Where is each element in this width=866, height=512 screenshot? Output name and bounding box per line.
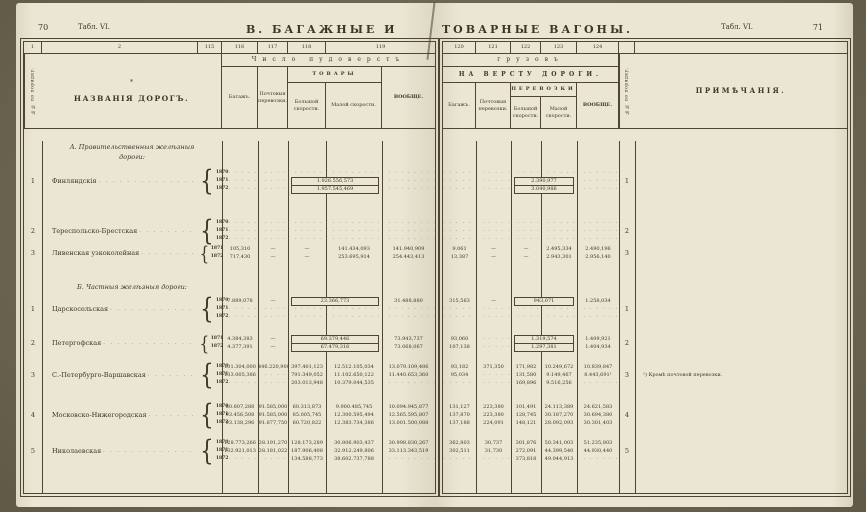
col-number: 121 bbox=[476, 42, 511, 54]
road-row-right: . . . . . . . . . . . . . . . . . . . . … bbox=[443, 169, 847, 193]
dot-leader: . . . . . . . . . . . . . . . . . . . . … bbox=[139, 228, 196, 234]
empty-dotted-cell: . . . . . . . . . . . . . . bbox=[288, 219, 326, 227]
data-cell: 302,511 bbox=[443, 447, 476, 455]
empty-dotted-cell: . . . . . . . . . . . . . . bbox=[222, 177, 258, 185]
road-number: 5 bbox=[24, 439, 42, 463]
empty-dotted-cell: . . . . . . . . . . . . . . bbox=[577, 185, 619, 193]
data-cell: — bbox=[258, 297, 288, 305]
empty-dotted-cell: . . . . . . . . . . . . . . bbox=[382, 313, 435, 321]
empty-dotted-cell: . . . . . . . . . . . . . . bbox=[222, 305, 258, 313]
empty-dotted-cell: . . . . . . . . . . . . . . bbox=[577, 169, 619, 177]
data-cell: 717,430 bbox=[222, 253, 258, 261]
merged-value-box: 67.479,316 bbox=[291, 343, 379, 352]
data-cell: 80.807,288 bbox=[222, 403, 258, 411]
empty-dotted-cell: . . . . . . . . . . . . . . bbox=[326, 305, 382, 313]
empty-dotted-cell: . . . . . . . . . . . . . . bbox=[258, 227, 288, 235]
data-cell: 93.456,508 bbox=[222, 411, 258, 419]
data-cell: 141.940,909 bbox=[382, 245, 435, 253]
empty-dotted-cell: . . . . . . . . . . . . . . bbox=[541, 219, 577, 227]
col-number: 118 bbox=[288, 42, 326, 54]
year-brace-cell: {187018711872 bbox=[198, 219, 222, 243]
empty-dotted-cell: . . . . . . . . . . . . . . bbox=[326, 227, 382, 235]
data-cell: 362,803 bbox=[443, 439, 476, 447]
data-cell: 254.443,413 bbox=[382, 253, 435, 261]
data-cell: 93,182 bbox=[443, 363, 476, 371]
road-number: 3 bbox=[24, 363, 42, 387]
road-note: ¹) Кромѣ почтовой перевозки. bbox=[635, 363, 847, 387]
col-number: 2 bbox=[42, 42, 198, 54]
data-cell: 128,745 bbox=[511, 411, 541, 419]
data-cell: 33.113.343,519 bbox=[382, 447, 435, 455]
road-row-right: 93,182371,350171,98210.249,67210.839,847… bbox=[443, 363, 847, 387]
baggage-header: Багажъ. bbox=[443, 83, 476, 128]
year-brace: { bbox=[200, 439, 213, 463]
empty-dotted-cell: . . . . . . . . . . . . . . bbox=[382, 379, 435, 387]
running-head-right: ТОВАРНЫЕ ВАГОНЫ. Табл. VI. 71 bbox=[434, 23, 853, 37]
section-heading-spacer bbox=[443, 141, 847, 163]
col-number: 117 bbox=[258, 42, 288, 54]
data-cell: — bbox=[511, 253, 541, 261]
empty-dotted-cell: . . . . . . . . . . . . . . bbox=[476, 343, 511, 351]
data-cell: 95,034 bbox=[443, 371, 476, 379]
empty-dotted-cell: . . . . . . . . . . . . . . bbox=[443, 219, 476, 227]
empty-dotted-cell: . . . . . . . . . . . . . . bbox=[222, 455, 258, 463]
merged-value-box: 1.957.545,469 bbox=[291, 185, 379, 194]
empty-dotted-cell: . . . . . . . . . . . . . . bbox=[258, 305, 288, 313]
data-cell: 2.943,301 bbox=[541, 253, 577, 261]
col-number: 119 bbox=[326, 42, 435, 54]
empty-dotted-cell: . . . . . . . . . . . . . . bbox=[326, 313, 382, 321]
year-brace: { bbox=[200, 219, 213, 243]
data-cell: 2.490,196 bbox=[577, 245, 619, 253]
empty-dotted-cell: . . . . . . . . . . . . . . bbox=[476, 169, 511, 177]
col-number: 115 bbox=[198, 42, 222, 54]
total-header: ВООБЩЕ. bbox=[577, 83, 619, 128]
empty-dotted-cell: . . . . . . . . . . . . . . bbox=[476, 335, 511, 343]
road-number-right: 1 bbox=[619, 169, 635, 193]
data-cell: 30.998.830,267 bbox=[382, 439, 435, 447]
empty-dotted-cell: . . . . . . . . . . . . . . bbox=[288, 305, 326, 313]
data-cell: — bbox=[511, 245, 541, 253]
data-cell: 10.839,847 bbox=[577, 363, 619, 371]
section-heading-spacer bbox=[443, 281, 847, 293]
road-name: Николаевская bbox=[52, 447, 101, 455]
data-cell: — bbox=[258, 253, 288, 261]
data-cell: 13,387 bbox=[443, 253, 476, 261]
empty-dotted-cell: . . . . . . . . . . . . . . bbox=[577, 227, 619, 235]
road-name-cell: Финляндскія. . . . . . . . . . . . . . .… bbox=[42, 169, 198, 193]
data-cell: — bbox=[476, 253, 511, 261]
order-column-header: №№ по порядку. bbox=[619, 54, 635, 128]
data-cell: 137,188 bbox=[443, 419, 476, 427]
empty-dotted-cell: . . . . . . . . . . . . . . bbox=[258, 313, 288, 321]
empty-dotted-cell: . . . . . . . . . . . . . . bbox=[382, 305, 435, 313]
road-number-right: 4 bbox=[619, 403, 635, 427]
data-cell: 13.079.109,486 bbox=[382, 363, 435, 371]
table-right-header: 120 121 122 123 124 грузовъ НА ВЕРСТУ ДО… bbox=[443, 42, 847, 129]
slow-speed-header: Малой скорости. bbox=[326, 83, 382, 128]
data-cell: — bbox=[288, 253, 326, 261]
empty-dotted-cell: . . . . . . . . . . . . . . bbox=[511, 313, 541, 321]
empty-dotted-cell: . . . . . . . . . . . . . . bbox=[476, 313, 511, 321]
empty-dotted-cell: . . . . . . . . . . . . . . bbox=[326, 235, 382, 243]
road-number: 1 bbox=[24, 169, 42, 193]
data-cell: 11.102.650,122 bbox=[326, 371, 382, 379]
empty-dotted-cell: . . . . . . . . . . . . . . bbox=[476, 455, 511, 463]
data-cell: — bbox=[258, 335, 288, 343]
road-row-right: 315,563—943,0711.258,034. . . . . . . . … bbox=[443, 297, 847, 321]
dot-leader: . . . . . . . . . . . . . . . . . . . . … bbox=[141, 250, 196, 256]
data-cell: 137,870 bbox=[443, 411, 476, 419]
year-brace: { bbox=[200, 297, 213, 321]
data-cell: 223,380 bbox=[476, 411, 511, 419]
road-number-right: 5 bbox=[619, 439, 635, 463]
data-cell: 12.383.734,386 bbox=[326, 419, 382, 427]
data-cell: 91.585,000 bbox=[258, 411, 288, 419]
data-cell: 73.068,067 bbox=[382, 343, 435, 351]
data-cell: 397.401,123 bbox=[288, 363, 326, 371]
data-cell: — bbox=[476, 245, 511, 253]
empty-dotted-cell: . . . . . . . . . . . . . . bbox=[222, 313, 258, 321]
data-cell: 9.149,467 bbox=[541, 371, 577, 379]
data-cell: 31.488,880 bbox=[382, 297, 435, 305]
data-cell: 253.695,914 bbox=[326, 253, 382, 261]
table-right-body: . . . . . . . . . . . . . . . . . . . . … bbox=[443, 141, 847, 493]
empty-dotted-cell: . . . . . . . . . . . . . . bbox=[511, 305, 541, 313]
section-heading: Б. Частныя желѣзныя дороги: bbox=[42, 281, 222, 293]
table-ref-left: Табл. VI. bbox=[78, 23, 110, 31]
data-cell: 272,091 bbox=[511, 447, 541, 455]
data-cell: 10.249,672 bbox=[541, 363, 577, 371]
road-row: 1Финляндскія. . . . . . . . . . . . . . … bbox=[24, 169, 435, 193]
data-cell: 7.889,078 bbox=[222, 297, 258, 305]
data-cell: 85.005,745 bbox=[288, 411, 326, 419]
road-row: 3Ливенская узкоколейная. . . . . . . . .… bbox=[24, 245, 435, 261]
merged-value-box: 23.366,773 bbox=[291, 297, 379, 306]
table-left-frame: 1 2 115 116 117 118 119 №№ по порядку. *… bbox=[20, 38, 439, 497]
empty-dotted-cell: . . . . . . . . . . . . . . bbox=[443, 227, 476, 235]
data-cell: 60.313,873 bbox=[288, 403, 326, 411]
col-number: 116 bbox=[222, 42, 258, 54]
year-brace-cell: {187018711872 bbox=[198, 439, 222, 463]
data-cell: 371,350 bbox=[476, 363, 511, 371]
slow-speed-header: Малой скорости. bbox=[541, 97, 577, 128]
empty-dotted-cell: . . . . . . . . . . . . . . bbox=[476, 371, 511, 379]
col-number: 1 bbox=[24, 42, 42, 54]
data-cell: 13.001.500,088 bbox=[382, 419, 435, 427]
dot-leader: . . . . . . . . . . . . . . . . . . . . … bbox=[110, 306, 196, 312]
empty-dotted-cell: . . . . . . . . . . . . . . bbox=[222, 185, 258, 193]
data-cell: 105,310 bbox=[222, 245, 258, 253]
section-heading-row: А. Правительственныя желѣзныя дороги: bbox=[24, 141, 435, 163]
road-name-cell: С.-Петербурго-Варшавская. . . . . . . . … bbox=[42, 363, 198, 387]
data-cell: 44.399,540 bbox=[541, 447, 577, 455]
data-cell: 9.900.485,745 bbox=[326, 403, 382, 411]
page-number-right: 71 bbox=[813, 23, 823, 32]
data-cell: 60.720,822 bbox=[288, 419, 326, 427]
data-cell: 1.258,034 bbox=[577, 297, 619, 305]
empty-dotted-cell: . . . . . . . . . . . . . . bbox=[476, 185, 511, 193]
fast-speed-header: Большой скорости. bbox=[288, 83, 326, 128]
empty-dotted-cell: . . . . . . . . . . . . . . bbox=[258, 235, 288, 243]
data-cell: — bbox=[288, 245, 326, 253]
empty-dotted-cell: . . . . . . . . . . . . . . bbox=[443, 313, 476, 321]
data-cell: 791.349,052 bbox=[288, 371, 326, 379]
data-cell: 133.005,386 bbox=[222, 371, 258, 379]
data-cell: 2.495,334 bbox=[541, 245, 577, 253]
fast-speed-header: Большой скорости. bbox=[511, 97, 541, 128]
empty-dotted-cell: . . . . . . . . . . . . . . bbox=[258, 379, 288, 387]
post-header: Почтовыя перевозки. bbox=[476, 83, 511, 128]
empty-dotted-cell: . . . . . . . . . . . . . . bbox=[577, 219, 619, 227]
data-cell: 44.930,440 bbox=[577, 447, 619, 455]
road-row: 1Царскосельская. . . . . . . . . . . . .… bbox=[24, 297, 435, 321]
year-brace-cell: {187018711872 bbox=[198, 169, 222, 193]
year-brace-cell: {18711872 bbox=[198, 335, 222, 351]
col-number: 122 bbox=[511, 42, 541, 54]
year-brace-cell: {187018711872 bbox=[198, 297, 222, 321]
table-left-body: А. Правительственныя желѣзныя дороги:1Фи… bbox=[24, 141, 435, 493]
empty-dotted-cell: . . . . . . . . . . . . . . bbox=[476, 379, 511, 387]
road-name: С.-Петербурго-Варшавская bbox=[52, 371, 146, 379]
road-name-cell: Петергофская. . . . . . . . . . . . . . … bbox=[42, 335, 198, 351]
data-cell: 131,580 bbox=[511, 371, 541, 379]
empty-dotted-cell: . . . . . . . . . . . . . . bbox=[511, 227, 541, 235]
data-cell: 24.621,583 bbox=[577, 403, 619, 411]
empty-dotted-cell: . . . . . . . . . . . . . . bbox=[382, 227, 435, 235]
road-name-cell: Московско-Нижегородская. . . . . . . . .… bbox=[42, 403, 198, 427]
data-cell: 10.379.044,535 bbox=[326, 379, 382, 387]
road-number: 2 bbox=[24, 219, 42, 243]
data-cell: 301,876 bbox=[511, 439, 541, 447]
empty-dotted-cell: . . . . . . . . . . . . . . bbox=[541, 305, 577, 313]
section-heading: А. Правительственныя желѣзныя дороги: bbox=[42, 141, 222, 163]
empty-dotted-cell: . . . . . . . . . . . . . . bbox=[222, 235, 258, 243]
data-cell: 49.044,913 bbox=[541, 455, 577, 463]
data-cell: 28.181,022 bbox=[258, 447, 288, 455]
col-number: 123 bbox=[541, 42, 577, 54]
road-number-right: 3 bbox=[619, 363, 635, 387]
notes-header: ПРИМѢЧАНІЯ. bbox=[635, 54, 847, 128]
data-cell: 8.443,691¹ bbox=[577, 371, 619, 379]
data-cell: 91.585,000 bbox=[258, 403, 288, 411]
empty-dotted-cell: . . . . . . . . . . . . . . bbox=[258, 455, 288, 463]
empty-dotted-cell: . . . . . . . . . . . . . . bbox=[511, 219, 541, 227]
empty-dotted-cell: . . . . . . . . . . . . . . bbox=[443, 177, 476, 185]
empty-dotted-cell: . . . . . . . . . . . . . . bbox=[511, 235, 541, 243]
data-cell: 30.187,270 bbox=[541, 411, 577, 419]
empty-dotted-cell: . . . . . . . . . . . . . . bbox=[222, 227, 258, 235]
empty-dotted-cell: . . . . . . . . . . . . . . bbox=[577, 235, 619, 243]
span-header-poods: Число пудоверстъ bbox=[222, 54, 435, 67]
data-cell: 30.301,403 bbox=[577, 419, 619, 427]
data-cell: 28.191,270 bbox=[258, 439, 288, 447]
empty-dotted-cell: . . . . . . . . . . . . . . bbox=[258, 177, 288, 185]
road-row: 3С.-Петербурго-Варшавская. . . . . . . .… bbox=[24, 363, 435, 387]
col-number: 120 bbox=[443, 42, 476, 54]
empty-dotted-cell: . . . . . . . . . . . . . . bbox=[541, 235, 577, 243]
year-brace-cell: {187018711872 bbox=[198, 403, 222, 427]
road-name-cell: Царскосельская. . . . . . . . . . . . . … bbox=[42, 297, 198, 321]
baggage-header: Багажъ. bbox=[222, 67, 258, 128]
blank-header-cell bbox=[619, 42, 635, 54]
empty-dotted-cell: . . . . . . . . . . . . . . bbox=[577, 379, 619, 387]
data-cell: 1.409,921 bbox=[577, 335, 619, 343]
empty-dotted-cell: . . . . . . . . . . . . . . bbox=[443, 169, 476, 177]
data-cell: 132.921,013 bbox=[222, 447, 258, 455]
data-cell: 315,563 bbox=[443, 297, 476, 305]
merged-value-box: 3.040,986 bbox=[514, 185, 574, 194]
data-cell: 187.906,408 bbox=[288, 447, 326, 455]
names-header: НАЗВАНІЯ ДОРОГЪ. bbox=[74, 94, 189, 103]
empty-dotted-cell: . . . . . . . . . . . . . . bbox=[577, 305, 619, 313]
data-cell: 9.516,256 bbox=[541, 379, 577, 387]
data-cell: 101,491 bbox=[511, 403, 541, 411]
names-asterisk: * bbox=[130, 79, 133, 87]
road-row-right: 131,127223,380101,49124.113,38924.621,58… bbox=[443, 403, 847, 427]
road-number: 3 bbox=[24, 245, 42, 261]
data-cell: 141.434,093 bbox=[326, 245, 382, 253]
empty-dotted-cell: . . . . . . . . . . . . . . bbox=[382, 455, 435, 463]
merged-value-box: 943,071 bbox=[514, 297, 574, 306]
col-number: 124 bbox=[577, 42, 619, 54]
road-name: Финляндскія bbox=[52, 177, 97, 185]
road-row: 4Московско-Нижегородская. . . . . . . . … bbox=[24, 403, 435, 427]
data-cell: 9,061 bbox=[443, 245, 476, 253]
merged-value-box: 1.297,381 bbox=[514, 343, 574, 352]
blank-header-cell bbox=[635, 42, 847, 54]
transport-group-header: ПЕРЕВОЗКИ bbox=[511, 83, 577, 97]
empty-dotted-cell: . . . . . . . . . . . . . . bbox=[288, 313, 326, 321]
road-number: 2 bbox=[24, 335, 42, 351]
data-cell: 4.377,391 bbox=[222, 343, 258, 351]
empty-dotted-cell: . . . . . . . . . . . . . . bbox=[443, 235, 476, 243]
data-cell: 12.565.595,807 bbox=[382, 411, 435, 419]
dot-leader: . . . . . . . . . . . . . . . . . . . . … bbox=[148, 372, 196, 378]
road-row-right: . . . . . . . . . . . . . . . . . . . . … bbox=[443, 219, 847, 243]
data-cell: 91.877,750 bbox=[258, 419, 288, 427]
empty-dotted-cell: . . . . . . . . . . . . . . bbox=[476, 235, 511, 243]
empty-dotted-cell: . . . . . . . . . . . . . . bbox=[382, 219, 435, 227]
order-column-header: №№ по порядку. bbox=[24, 54, 42, 128]
empty-dotted-cell: . . . . . . . . . . . . . . bbox=[382, 185, 435, 193]
road-row: 2Петергофская. . . . . . . . . . . . . .… bbox=[24, 335, 435, 351]
empty-dotted-cell: . . . . . . . . . . . . . . bbox=[222, 379, 258, 387]
section-heading-row: Б. Частныя желѣзныя дороги: bbox=[24, 281, 435, 293]
data-cell: 1.404,934 bbox=[577, 343, 619, 351]
empty-dotted-cell: . . . . . . . . . . . . . . bbox=[476, 177, 511, 185]
road-name: Тереспольско-Брестская bbox=[52, 227, 137, 235]
empty-dotted-cell: . . . . . . . . . . . . . . bbox=[476, 305, 511, 313]
road-row: 5Николаевская. . . . . . . . . . . . . .… bbox=[24, 439, 435, 463]
road-row-right: 9,061——2.495,3342.490,19613,387——2.943,3… bbox=[443, 245, 847, 261]
year-brace: { bbox=[200, 169, 213, 193]
road-name-cell: Николаевская. . . . . . . . . . . . . . … bbox=[42, 439, 198, 463]
data-cell: 30.806.903,437 bbox=[326, 439, 382, 447]
road-name: Царскосельская bbox=[52, 305, 108, 313]
data-cell: 171,982 bbox=[511, 363, 541, 371]
dot-leader: . . . . . . . . . . . . . . . . . . . . … bbox=[149, 412, 196, 418]
empty-dotted-cell: . . . . . . . . . . . . . . bbox=[577, 455, 619, 463]
data-cell: 223,380 bbox=[476, 403, 511, 411]
empty-dotted-cell: . . . . . . . . . . . . . . bbox=[443, 455, 476, 463]
data-cell: 11.440.653,360 bbox=[382, 371, 435, 379]
year-brace: { bbox=[200, 245, 210, 261]
data-cell: 10.094.945,877 bbox=[382, 403, 435, 411]
data-cell: 31,730 bbox=[476, 447, 511, 455]
road-number-right: 1 bbox=[619, 297, 635, 321]
table-ref-right: Табл. VI. bbox=[721, 23, 753, 31]
empty-dotted-cell: . . . . . . . . . . . . . . bbox=[382, 177, 435, 185]
empty-dotted-cell: . . . . . . . . . . . . . . bbox=[476, 227, 511, 235]
span-header-cargo: грузовъ bbox=[443, 54, 619, 67]
data-cell: 128.173,289 bbox=[288, 439, 326, 447]
road-name-cell: Ливенская узкоколейная. . . . . . . . . … bbox=[42, 245, 198, 261]
data-cell: — bbox=[258, 343, 288, 351]
table-right-frame: 120 121 122 123 124 грузовъ НА ВЕРСТУ ДО… bbox=[439, 38, 851, 497]
post-header: Почтовыя перевозки. bbox=[258, 67, 288, 128]
year-brace: { bbox=[200, 363, 213, 387]
table-left-header: 1 2 115 116 117 118 119 №№ по порядку. *… bbox=[24, 42, 435, 129]
data-cell: 12.512.105,034 bbox=[326, 363, 382, 371]
road-number-right: 2 bbox=[619, 335, 635, 351]
data-cell: 224,091 bbox=[476, 419, 511, 427]
road-name: Петергофская bbox=[52, 339, 101, 347]
empty-dotted-cell: . . . . . . . . . . . . . . bbox=[577, 313, 619, 321]
data-cell: 38.602.737,788 bbox=[326, 455, 382, 463]
empty-dotted-cell: . . . . . . . . . . . . . . bbox=[382, 169, 435, 177]
data-cell: 131,127 bbox=[443, 403, 476, 411]
year-brace-cell: {18711872 bbox=[198, 245, 222, 261]
data-cell: 169,896 bbox=[511, 379, 541, 387]
data-cell: 50.341,003 bbox=[541, 439, 577, 447]
goods-group-header: ТОВАРЫ bbox=[288, 67, 382, 83]
empty-dotted-cell: . . . . . . . . . . . . . . bbox=[288, 235, 326, 243]
empty-dotted-cell: . . . . . . . . . . . . . . bbox=[326, 219, 382, 227]
data-cell: 30.694,380 bbox=[577, 411, 619, 419]
total-header: ВООБЩЕ. bbox=[382, 67, 435, 128]
empty-dotted-cell: . . . . . . . . . . . . . . bbox=[382, 235, 435, 243]
data-cell: 134.588,773 bbox=[288, 455, 326, 463]
spread-title-right: ТОВАРНЫЕ ВАГОНЫ. bbox=[442, 23, 633, 36]
data-cell: 446.220,900 bbox=[258, 363, 288, 371]
book-scan-background: 70 Табл. VI. В. БАГАЖНЫЕ И ТОВАРНЫЕ ВАГО… bbox=[0, 0, 866, 512]
data-cell: 203.013,948 bbox=[288, 379, 326, 387]
year-brace-cell: {187018711872 bbox=[198, 363, 222, 387]
data-cell: 373,818 bbox=[511, 455, 541, 463]
empty-dotted-cell: . . . . . . . . . . . . . . bbox=[222, 219, 258, 227]
data-cell: 32.912.249,806 bbox=[326, 447, 382, 455]
road-number-right: 3 bbox=[619, 245, 635, 261]
data-cell: 73.943,737 bbox=[382, 335, 435, 343]
per-verst-header: НА ВЕРСТУ ДОРОГИ. bbox=[443, 67, 619, 83]
empty-dotted-cell: . . . . . . . . . . . . . . bbox=[258, 371, 288, 379]
data-cell: 24.113,389 bbox=[541, 403, 577, 411]
road-name: Ливенская узкоколейная bbox=[52, 249, 139, 257]
running-head-left: 70 Табл. VI. В. БАГАЖНЫЕ И bbox=[16, 23, 434, 37]
road-name-cell: Тереспольско-Брестская. . . . . . . . . … bbox=[42, 219, 198, 243]
page-number-left: 70 bbox=[38, 23, 48, 32]
data-cell: 93,060 bbox=[443, 335, 476, 343]
year-brace: { bbox=[200, 335, 210, 351]
spread-title-left: В. БАГАЖНЫЕ И bbox=[246, 23, 398, 36]
data-cell: 148,121 bbox=[511, 419, 541, 427]
data-cell: 128.773,266 bbox=[222, 439, 258, 447]
dot-leader: . . . . . . . . . . . . . . . . . . . . … bbox=[103, 448, 196, 454]
road-row-right: 362,80330,737301,87650.341,00351.235,803… bbox=[443, 439, 847, 463]
empty-dotted-cell: . . . . . . . . . . . . . . bbox=[222, 169, 258, 177]
empty-dotted-cell: . . . . . . . . . . . . . . bbox=[443, 379, 476, 387]
